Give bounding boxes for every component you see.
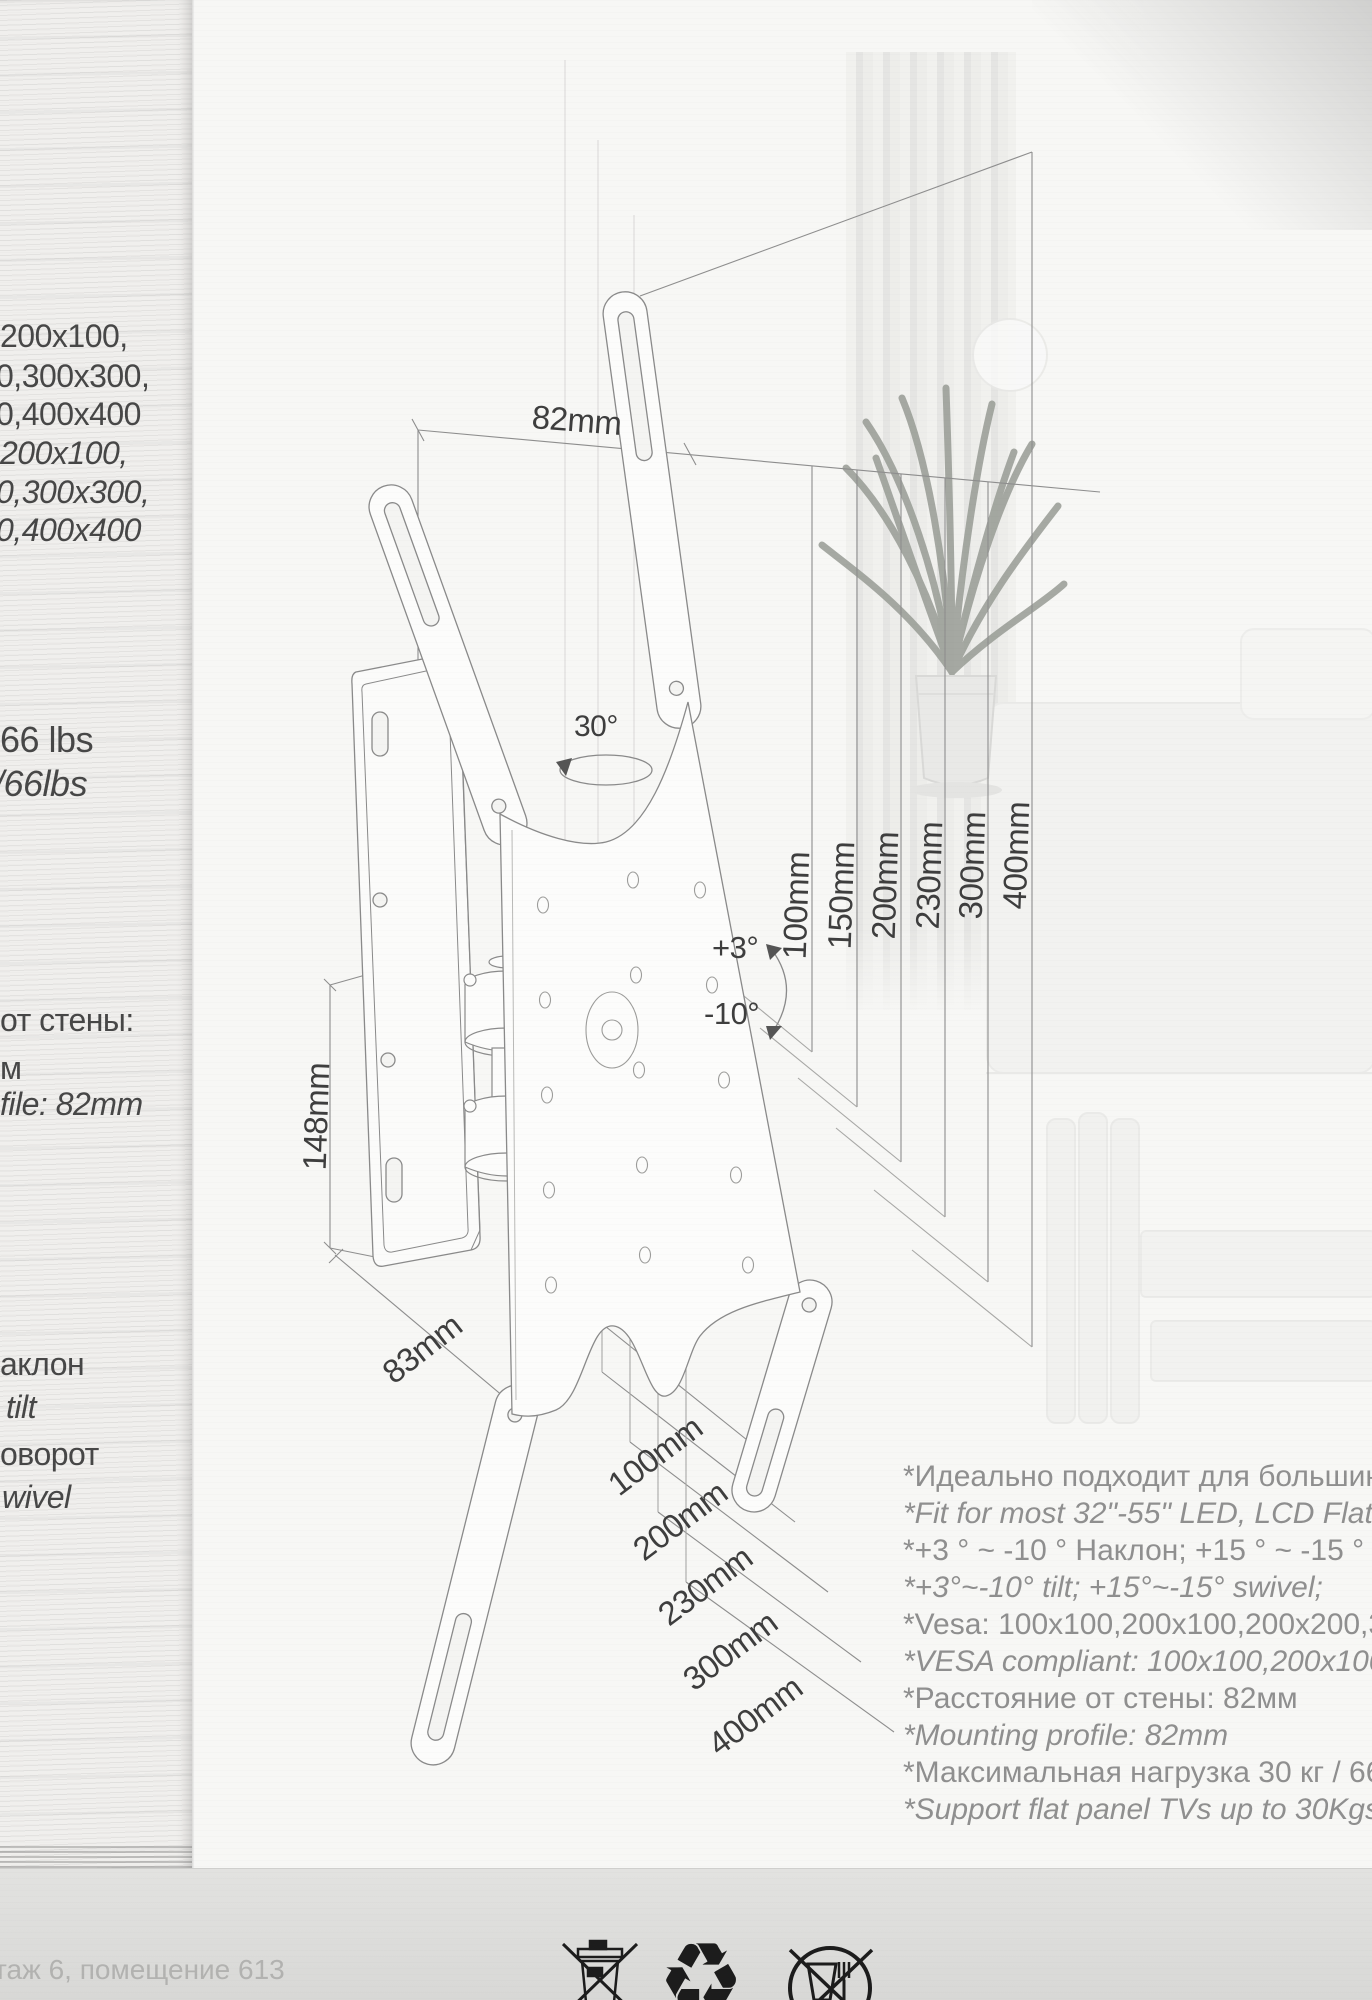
- swivel-ru: оворот: [0, 1438, 99, 1470]
- no-food-contact-icon: [778, 1936, 882, 2000]
- tilt-en: tilt: [6, 1391, 36, 1423]
- rib-dark-edge: [0, 1846, 192, 1868]
- spec-line-ru: *+3 ° ~ -10 ° Наклон; +15 ° ~ -15 ° П: [903, 1536, 1372, 1566]
- tilt-ru: аклон: [0, 1348, 84, 1380]
- spec-line-ru: *Идеально подходит для большин: [903, 1462, 1372, 1492]
- recycle-icon: ♻: [658, 1930, 744, 2000]
- wall-distance-value: м: [0, 1052, 22, 1084]
- address-fragment: таж 6, помещение 613: [0, 1954, 285, 1986]
- panel-fold-line: [192, 0, 195, 1868]
- mounting-profile-en: file: 82mm: [0, 1088, 143, 1120]
- dim-v-100mm: 100mm: [777, 835, 815, 976]
- vesa-list-line: 200x100,: [0, 437, 128, 469]
- tilt-up-label: +3°: [712, 932, 758, 963]
- dim-v-300mm: 300mm: [953, 795, 991, 936]
- vesa-plate: [500, 702, 800, 1416]
- max-load-lbs: 66 lbs: [0, 722, 93, 758]
- vesa-list-line: 0,400x400: [0, 514, 141, 546]
- spec-line-ru: *Максимальная нагрузка 30 кг / 66: [903, 1758, 1372, 1788]
- swivel-en: wivel: [2, 1481, 71, 1513]
- dim-v-400mm: 400mm: [997, 785, 1035, 926]
- spec-line-en: *Fit for most 32"-55" LED, LCD Flat: [903, 1499, 1372, 1529]
- dim-148mm: 148mm: [297, 1036, 336, 1197]
- vesa-list-line: 200x100,: [0, 320, 128, 352]
- dim-v-200mm: 200mm: [866, 815, 904, 956]
- tilt-down-label: -10°: [704, 998, 759, 1029]
- rib-texture: [0, 0, 192, 1868]
- spec-line-en: *Mounting profile: 82mm: [903, 1721, 1228, 1751]
- spec-line-ru: *Vesa: 100x100,200x100,200x200,3: [903, 1610, 1372, 1640]
- package-photo: 200x100, 0,300x300, 0,400x400 200x100, 0…: [0, 0, 1372, 2000]
- vesa-list-line: 0,300x300,: [0, 476, 149, 508]
- spec-line-en: *+3°~-10° tilt; +15°~-15° swivel;: [903, 1573, 1323, 1603]
- wall-distance-ru: от стены:: [0, 1004, 134, 1036]
- max-load-lbs-en: /66lbs: [0, 766, 87, 802]
- vesa-list-line: 0,300x300,: [0, 360, 149, 392]
- box-side-panel: [0, 0, 192, 1868]
- spec-line-en: *Support flat panel TVs up to 30Kgs: [903, 1795, 1372, 1825]
- spec-line-en: *VESA compliant: 100x100,200x100: [903, 1647, 1372, 1677]
- dim-v-230mm: 230mm: [910, 805, 948, 946]
- vesa-list-line: 0,400x400: [0, 398, 141, 430]
- weee-bin-icon: [558, 1936, 642, 2000]
- spec-line-ru: *Расстояние от стены: 82мм: [903, 1684, 1298, 1714]
- dim-v-150mm: 150mm: [822, 825, 860, 966]
- dim-82mm: 82mm: [531, 400, 623, 440]
- swivel-angle-label: 30°: [574, 712, 618, 742]
